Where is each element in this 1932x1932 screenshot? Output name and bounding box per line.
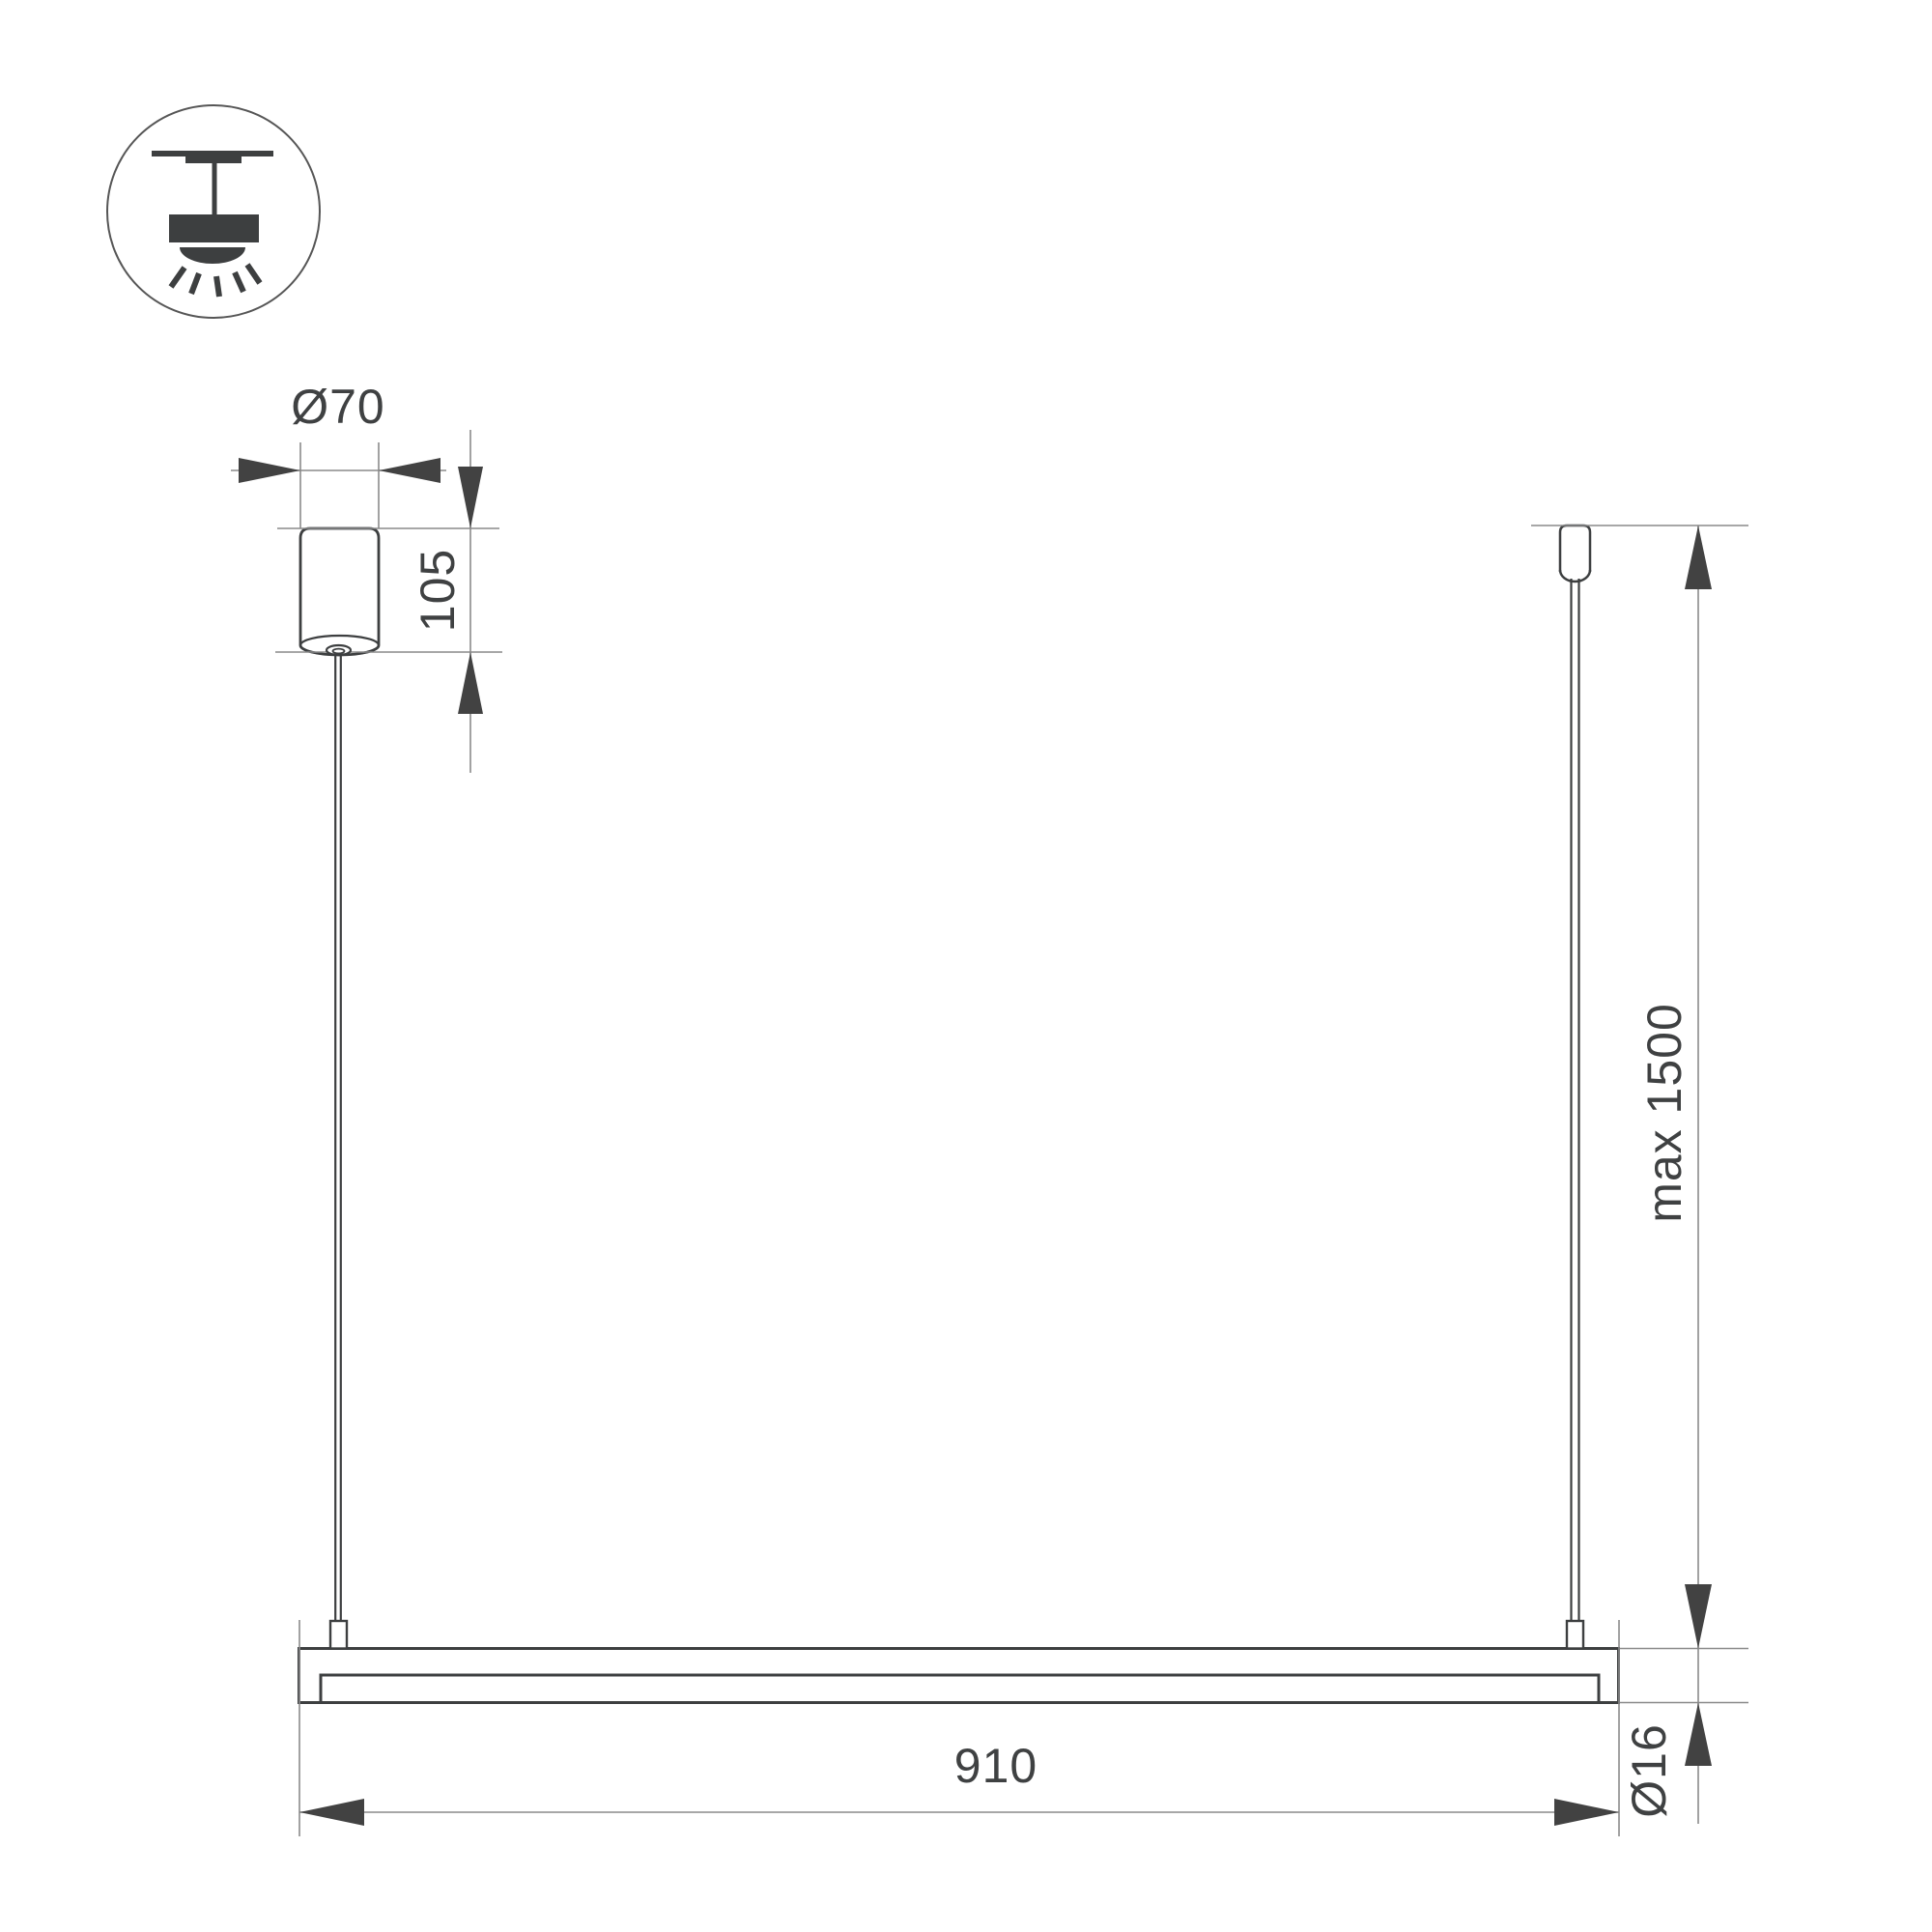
canopy-diameter-label: Ø70 <box>291 380 385 434</box>
suspension-cup <box>1560 526 1590 582</box>
arrowhead <box>458 467 483 528</box>
ceiling-canopy <box>300 528 379 655</box>
wire-grip-right <box>1567 1621 1583 1649</box>
ceiling-pendant-light-icon <box>107 105 320 318</box>
wire-grip-left <box>330 1621 347 1649</box>
dimension-max-suspension: max 1500 <box>1637 526 1712 1824</box>
arrowhead <box>1685 1584 1712 1649</box>
suspension-wire-right <box>1567 579 1583 1649</box>
extension-lines <box>275 442 1748 1836</box>
suspension-wire-left <box>330 654 347 1649</box>
canopy-height-label: 105 <box>411 549 465 632</box>
lamp-body <box>169 214 259 242</box>
arrowhead <box>239 458 300 483</box>
arrowhead <box>1685 1703 1712 1767</box>
profile-diameter-label: Ø16 <box>1622 1723 1676 1818</box>
pendant-lamp-dimension-drawing: Ø70 105 max 1500 Ø16 910 <box>0 0 1932 1932</box>
suspension-length-label: max 1500 <box>1637 1003 1691 1223</box>
arrowhead <box>458 652 483 714</box>
cup-body <box>1560 526 1590 572</box>
dimension-canopy-diameter: Ø70 <box>231 380 446 483</box>
arrowhead <box>1554 1799 1619 1826</box>
arrowhead <box>299 1799 364 1826</box>
dimension-fixture-length: 910 <box>299 1739 1619 1826</box>
arrowhead <box>1685 526 1712 589</box>
technical-drawing-page: Ø70 105 max 1500 Ø16 910 <box>0 0 1932 1932</box>
dimension-canopy-height: 105 <box>411 430 483 773</box>
fixture-length-label: 910 <box>954 1739 1037 1793</box>
canopy-cable-gland <box>327 645 351 655</box>
arrowhead <box>379 458 440 483</box>
light-bar <box>299 1649 1619 1703</box>
